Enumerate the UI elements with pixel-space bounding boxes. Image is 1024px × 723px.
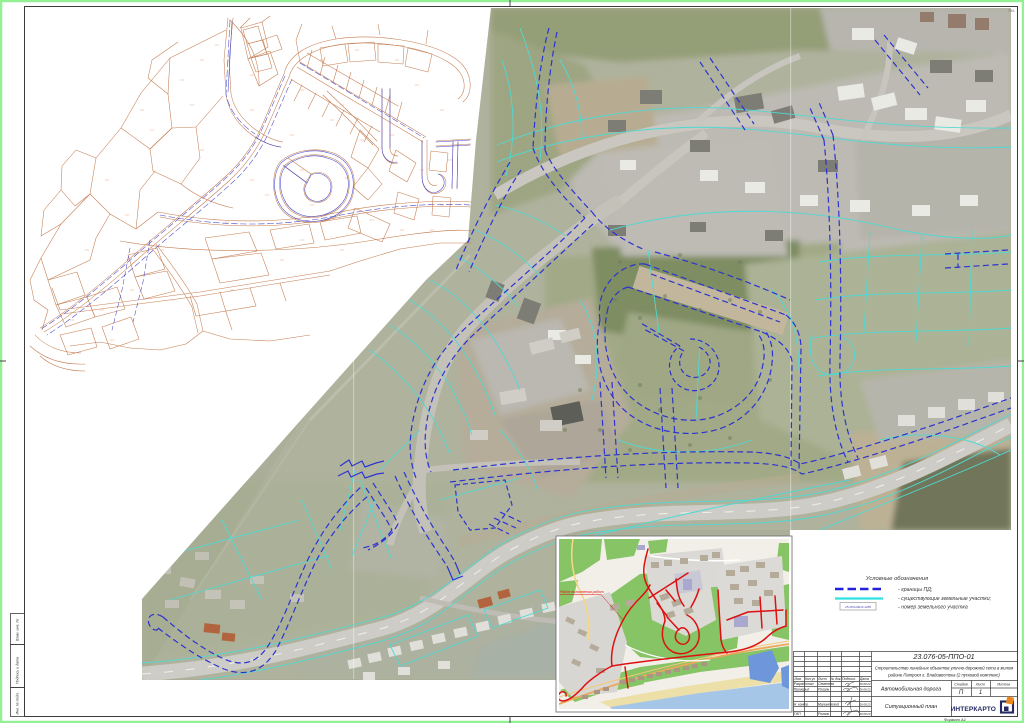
svg-text:Разработал: Разработал	[794, 682, 814, 686]
svg-text:Взам. инв. №: Взам. инв. №	[16, 619, 20, 641]
svg-text:- номер земельного участка: - номер земельного участка	[898, 605, 968, 611]
svg-text:Лист: Лист	[975, 682, 985, 686]
svg-text:Формат А1: Формат А1	[944, 717, 966, 722]
svg-text:Строительство линейных объекто: Строительство линейных объектов улично-д…	[875, 666, 1014, 671]
svg-text:Малиновский: Малиновский	[818, 702, 839, 706]
svg-text:1: 1	[979, 690, 982, 696]
svg-text:ГИП: ГИП	[794, 712, 801, 716]
svg-text:Инв. № подл.: Инв. № подл.	[16, 692, 20, 714]
svg-text:23.076-05-ППО-01: 23.076-05-ППО-01	[912, 652, 974, 661]
svg-text:- границы ПД;: - границы ПД;	[898, 587, 933, 593]
svg-text:Рогаль: Рогаль	[818, 712, 830, 716]
svg-text:79/1: 79/1	[1008, 9, 1015, 13]
svg-text:09.08.23: 09.08.23	[860, 702, 871, 706]
svg-text:25:28:010014:1286: 25:28:010014:1286	[844, 605, 871, 609]
svg-text:Район выполнения работ: Район выполнения работ	[560, 590, 604, 594]
svg-text:Подпись и дата: Подпись и дата	[16, 657, 20, 684]
svg-text:Ситуационный план: Ситуационный план	[885, 703, 937, 710]
svg-text:районе Патрокл г. Владивостока: районе Патрокл г. Владивостока (2 пусков…	[887, 673, 1000, 678]
svg-text:Автомобильная дорога: Автомобильная дорога	[880, 687, 941, 693]
svg-text:Проверил: Проверил	[794, 687, 810, 691]
svg-text:Стадия: Стадия	[954, 682, 968, 686]
svg-text:Кол.уч: Кол.уч	[805, 677, 815, 681]
svg-text:09.08.23: 09.08.23	[860, 687, 871, 691]
svg-text:Н. контр.: Н. контр.	[794, 702, 809, 706]
svg-text:09.08.23: 09.08.23	[860, 682, 871, 686]
svg-text:09.08.23: 09.08.23	[860, 712, 871, 716]
svg-text:Условные обозначения: Условные обозначения	[865, 576, 928, 582]
svg-text:ИНТЕРКАРТО: ИНТЕРКАРТО	[951, 706, 996, 713]
svg-text:Подпись: Подпись	[842, 677, 856, 681]
svg-text:№ док.: № док.	[831, 677, 842, 681]
svg-text:Семенова: Семенова	[818, 682, 834, 686]
svg-text:Листов: Листов	[996, 682, 1010, 686]
svg-text:Дата: Дата	[859, 677, 869, 681]
svg-text:Рогаль: Рогаль	[818, 687, 830, 691]
svg-text:Лист: Лист	[817, 677, 827, 681]
svg-text:- существующие земельные участ: - существующие земельные участки;	[898, 596, 992, 602]
svg-text:Изм.: Изм.	[795, 677, 802, 681]
svg-text:П: П	[959, 690, 964, 696]
